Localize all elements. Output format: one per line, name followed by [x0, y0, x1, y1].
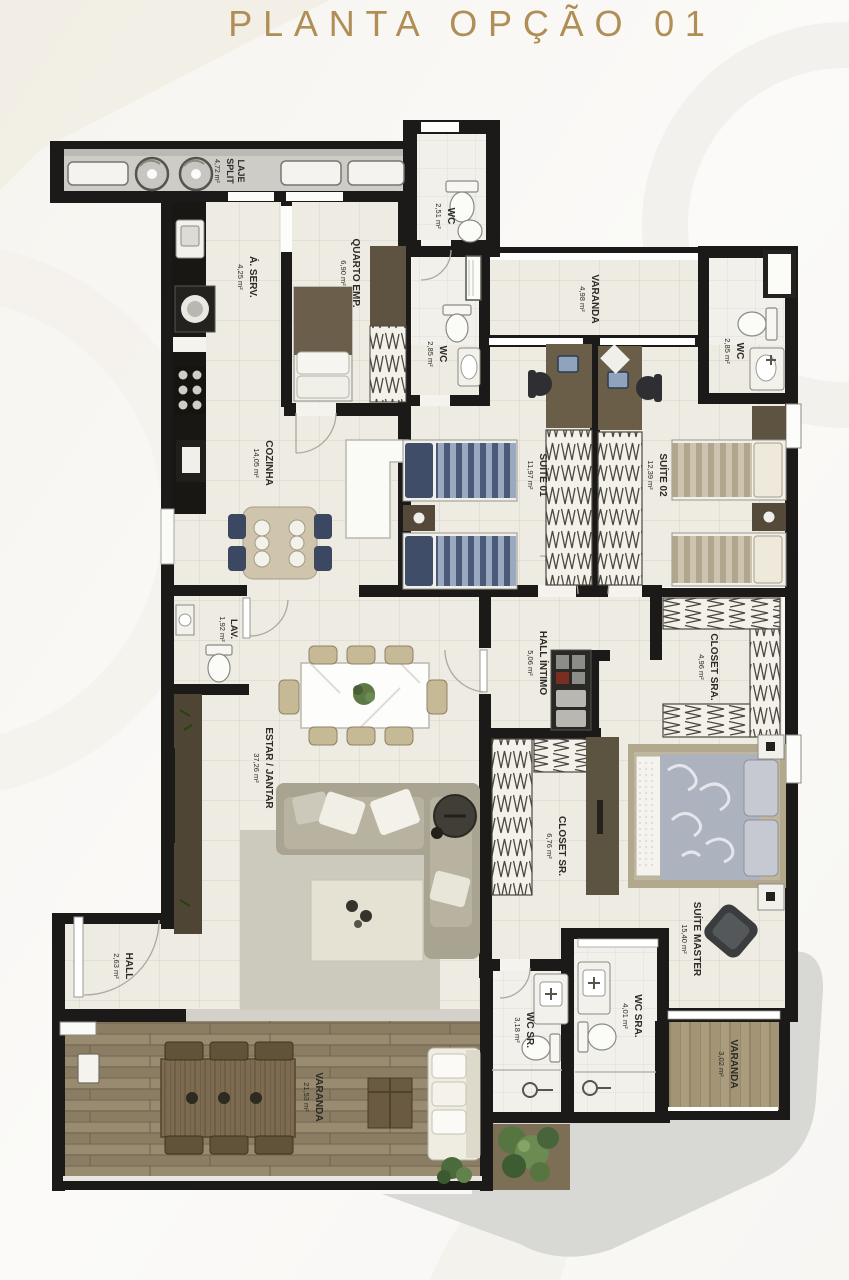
- svg-text:11,97 m²: 11,97 m²: [526, 460, 535, 490]
- svg-text:3,02 m²: 3,02 m²: [717, 1051, 726, 1077]
- svg-text:VARANDA: VARANDA: [728, 1039, 739, 1088]
- svg-text:HALL: HALL: [123, 953, 134, 980]
- svg-text:14,05 m²: 14,05 m²: [252, 448, 261, 478]
- svg-text:WC: WC: [437, 346, 448, 363]
- svg-text:WC SR.: WC SR.: [524, 1012, 535, 1048]
- svg-text:HALL ÍNTIMO: HALL ÍNTIMO: [537, 631, 550, 695]
- svg-text:VARANDA: VARANDA: [589, 274, 600, 323]
- svg-text:4,01 m²: 4,01 m²: [621, 1003, 630, 1029]
- svg-text:37,26 m²: 37,26 m²: [252, 753, 261, 783]
- svg-text:6,90 m²: 6,90 m²: [339, 260, 348, 286]
- svg-text:4,25 m²: 4,25 m²: [236, 264, 245, 290]
- svg-text:Á. SERV.: Á. SERV.: [247, 256, 260, 298]
- svg-text:15,40 m²: 15,40 m²: [680, 924, 689, 954]
- svg-text:5,06 m²: 5,06 m²: [526, 650, 535, 676]
- svg-text:VARANDA: VARANDA: [313, 1072, 324, 1121]
- svg-text:1,92 m²: 1,92 m²: [218, 616, 227, 642]
- svg-text:LAJE: LAJE: [236, 159, 246, 182]
- svg-text:SUÍTE 02: SUÍTE 02: [657, 453, 670, 497]
- svg-text:CLOSET SR.: CLOSET SR.: [556, 816, 567, 876]
- svg-text:2,63 m²: 2,63 m²: [112, 953, 121, 979]
- svg-text:SPLIT: SPLIT: [225, 158, 235, 184]
- svg-text:LAV.: LAV.: [228, 619, 239, 639]
- svg-text:WC SRA.: WC SRA.: [632, 994, 643, 1038]
- svg-text:COZINHA: COZINHA: [263, 440, 274, 486]
- svg-text:3,18 m²: 3,18 m²: [513, 1017, 522, 1043]
- svg-text:WC: WC: [734, 343, 745, 360]
- svg-text:WC: WC: [445, 208, 456, 225]
- svg-text:4,72 m²: 4,72 m²: [213, 159, 220, 183]
- svg-text:4,98 m²: 4,98 m²: [578, 286, 587, 312]
- svg-text:21,53 m²: 21,53 m²: [302, 1082, 311, 1112]
- svg-text:2,85 m²: 2,85 m²: [723, 338, 732, 364]
- svg-text:4,96 m²: 4,96 m²: [697, 654, 706, 680]
- svg-text:CLOSET SRA.: CLOSET SRA.: [708, 633, 719, 700]
- svg-text:SUÍTE MASTER: SUÍTE MASTER: [691, 902, 704, 977]
- svg-text:12,39 m²: 12,39 m²: [646, 460, 655, 490]
- svg-text:2,51 m²: 2,51 m²: [434, 203, 443, 229]
- svg-text:2,85 m²: 2,85 m²: [426, 341, 435, 367]
- svg-text:QUARTO EMP.: QUARTO EMP.: [350, 238, 361, 307]
- svg-text:ESTAR / JANTAR: ESTAR / JANTAR: [263, 727, 274, 809]
- svg-text:SUÍTE 01: SUÍTE 01: [537, 453, 550, 497]
- svg-text:6,76 m²: 6,76 m²: [545, 833, 554, 859]
- svg-text:PLANTA OPÇÃO 01: PLANTA OPÇÃO 01: [228, 3, 715, 44]
